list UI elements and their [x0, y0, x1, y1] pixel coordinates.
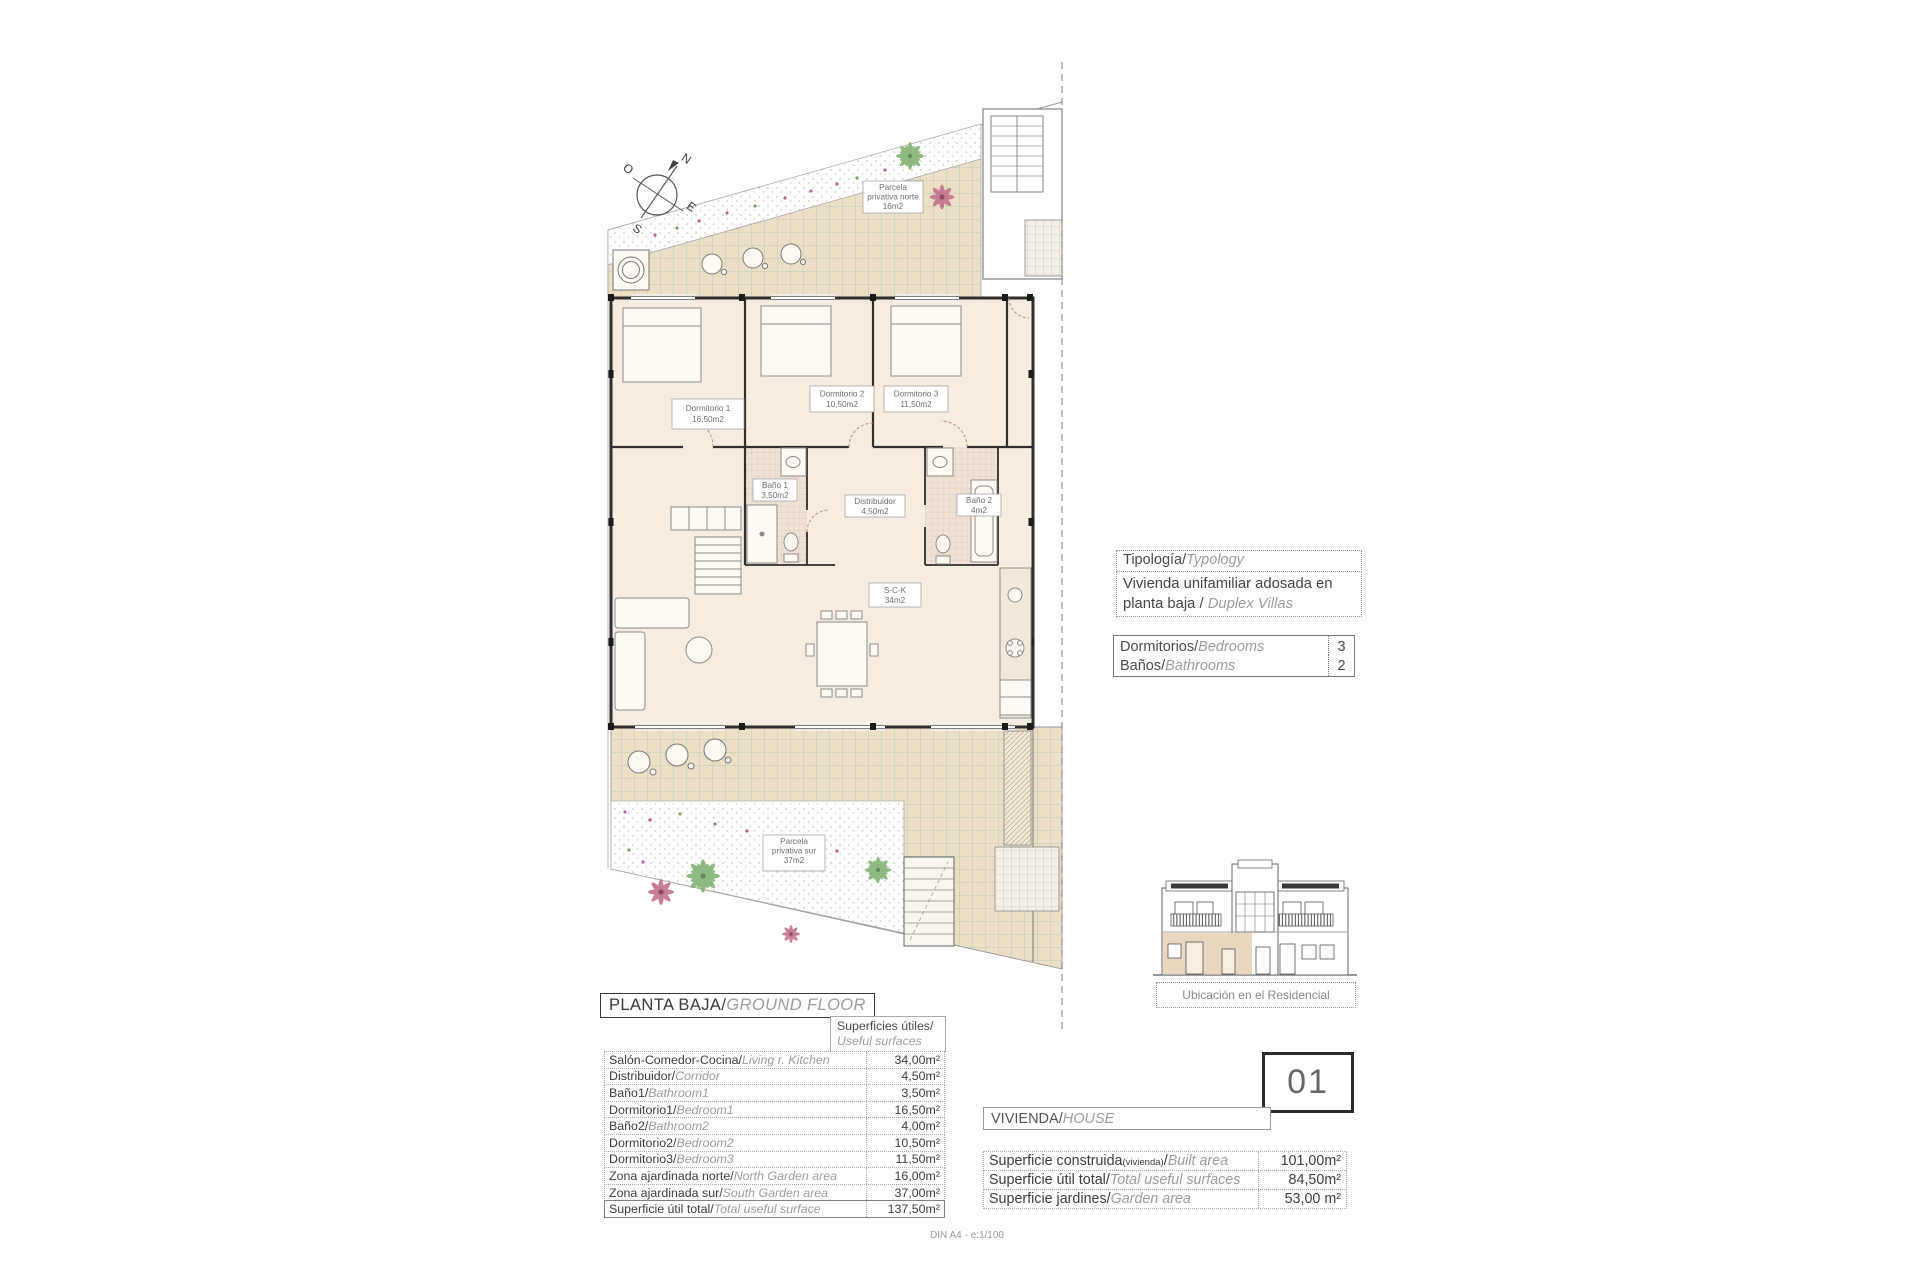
- table-row: Superficie jardines/Garden area 53,00 m²: [983, 1189, 1347, 1209]
- bedrooms-count: 3: [1328, 636, 1354, 657]
- sheet-scale-note: DIN A4 - e:1/100: [877, 1230, 1057, 1241]
- svg-text:Baño 1: Baño 1: [762, 481, 788, 490]
- svg-text:4,50m2: 4,50m2: [861, 507, 889, 516]
- svg-text:16m2: 16m2: [883, 202, 904, 211]
- row-value: 16,00m²: [866, 1168, 944, 1184]
- location-caption: Ubicación en el Residencial: [1156, 982, 1356, 1008]
- svg-text:37m2: 37m2: [784, 856, 805, 865]
- svg-text:N: N: [679, 151, 694, 167]
- bathrooms-count: 2: [1328, 655, 1354, 676]
- typology-value: Vivienda unifamiliar adosada en planta b…: [1116, 571, 1362, 617]
- table-row: Dormitorio1/Bedroom116,50m²: [604, 1101, 945, 1119]
- typology-header-es: Tipología: [1123, 552, 1182, 568]
- svg-text:10,50m2: 10,50m2: [826, 400, 858, 409]
- svg-text:Distribuidor: Distribuidor: [854, 497, 896, 506]
- row-value: 10,50m²: [866, 1135, 944, 1151]
- svg-text:Dormitorio 2: Dormitorio 2: [820, 390, 865, 399]
- row-value: 11,50m²: [866, 1152, 944, 1168]
- row-value: 37,00m²: [866, 1185, 944, 1201]
- svg-text:Dormitorio 3: Dormitorio 3: [894, 390, 939, 399]
- svg-text:16,50m2: 16,50m2: [692, 415, 724, 424]
- svg-text:11,50m2: 11,50m2: [900, 400, 932, 409]
- svg-text:34m2: 34m2: [885, 596, 906, 605]
- row-value: 4,00m²: [866, 1118, 944, 1134]
- unit-number-box: 01: [1262, 1052, 1354, 1113]
- plan-sheet: Parcela privativa norte 16m2 Dormitorio …: [0, 0, 1920, 1280]
- row-value: 4,50m²: [866, 1069, 944, 1085]
- svg-text:Dormitorio 1: Dormitorio 1: [686, 404, 731, 413]
- table-row: Superficie construida(vivienda)/Built ar…: [983, 1151, 1347, 1171]
- bathrooms-label: Baños/Bathrooms: [1114, 658, 1328, 674]
- table-row: Superficie útil total/Total useful surfa…: [983, 1170, 1347, 1190]
- svg-text:3,50m2: 3,50m2: [761, 491, 789, 500]
- neighbour-stair-block: [983, 109, 1062, 279]
- svg-text:Parcela: Parcela: [780, 837, 808, 846]
- row-value: 3,50m²: [866, 1085, 944, 1101]
- table-row: Distribuidor/Corridor4,50m²: [604, 1068, 945, 1086]
- row-value: 84,50m²: [1258, 1171, 1346, 1189]
- row-value: 53,00 m²: [1258, 1190, 1346, 1208]
- exterior-stair: [904, 857, 954, 946]
- page-title: PLANTA BAJA/GROUND FLOOR: [600, 993, 875, 1018]
- table-row: Dormitorio2/Bedroom210,50m²: [604, 1134, 945, 1152]
- row-value: 137,50m²: [866, 1201, 944, 1217]
- bathrooms-row: Baños/Bathrooms 2: [1113, 655, 1355, 677]
- table-row: Zona ajardinada sur/South Garden area37,…: [604, 1184, 945, 1202]
- svg-text:privativa sur: privativa sur: [772, 847, 816, 856]
- row-value: 16,50m²: [866, 1102, 944, 1118]
- row-value: 34,00m²: [866, 1052, 944, 1068]
- svg-text:4m2: 4m2: [971, 506, 987, 515]
- svg-text:Parcela: Parcela: [879, 183, 907, 192]
- svg-text:Baño 2: Baño 2: [966, 496, 992, 505]
- building-elevation: [1150, 852, 1360, 987]
- typology-value-en: Duplex Villas: [1208, 596, 1293, 612]
- surfaces-table: Salón-Comedor-Cocina/Living r. Kitchen34…: [604, 1052, 945, 1218]
- house-label-bar: VIVIENDA/HOUSE: [983, 1107, 1271, 1130]
- typology-header: Tipología/Typology: [1116, 550, 1362, 572]
- typology-header-en: Typology: [1186, 552, 1244, 568]
- svg-text:privativa norte: privativa norte: [867, 193, 919, 202]
- bedrooms-label: Dormitorios/Bedrooms: [1114, 639, 1328, 655]
- svg-text:S-C-K: S-C-K: [884, 586, 907, 595]
- table-row: Zona ajardinada norte/North Garden area1…: [604, 1167, 945, 1185]
- table-row: Baño1/Bathroom13,50m²: [604, 1084, 945, 1102]
- row-value: 101,00m²: [1258, 1152, 1346, 1170]
- table-row: Baño2/Bathroom24,00m²: [604, 1117, 945, 1135]
- table-row-total: Superficie útil total/Total useful surfa…: [604, 1200, 945, 1218]
- floor-plan: Parcela privativa norte 16m2 Dormitorio …: [595, 50, 1075, 1040]
- surfaces-header: Superficies útiles/ Useful surfaces: [830, 1016, 946, 1052]
- north-garden: [608, 124, 981, 298]
- south-terrace: [611, 727, 1062, 969]
- table-row: Dormitorio3/Bedroom311,50m²: [604, 1151, 945, 1169]
- house-table: Superficie construida(vivienda)/Built ar…: [983, 1152, 1347, 1209]
- table-row: Salón-Comedor-Cocina/Living r. Kitchen34…: [604, 1051, 945, 1069]
- svg-text:O: O: [620, 160, 636, 177]
